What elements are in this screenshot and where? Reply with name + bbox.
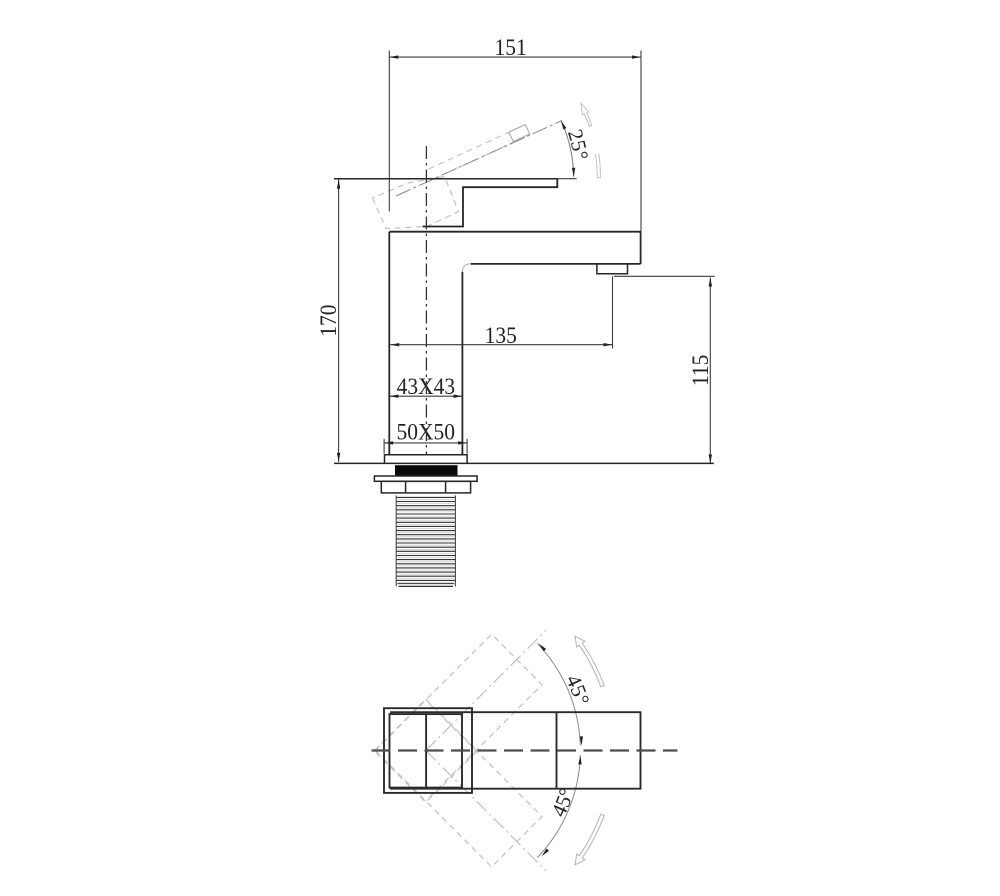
svg-text:135: 135 (485, 322, 517, 348)
svg-text:115: 115 (687, 355, 713, 386)
svg-text:151: 151 (494, 34, 526, 60)
svg-text:170: 170 (316, 304, 342, 336)
